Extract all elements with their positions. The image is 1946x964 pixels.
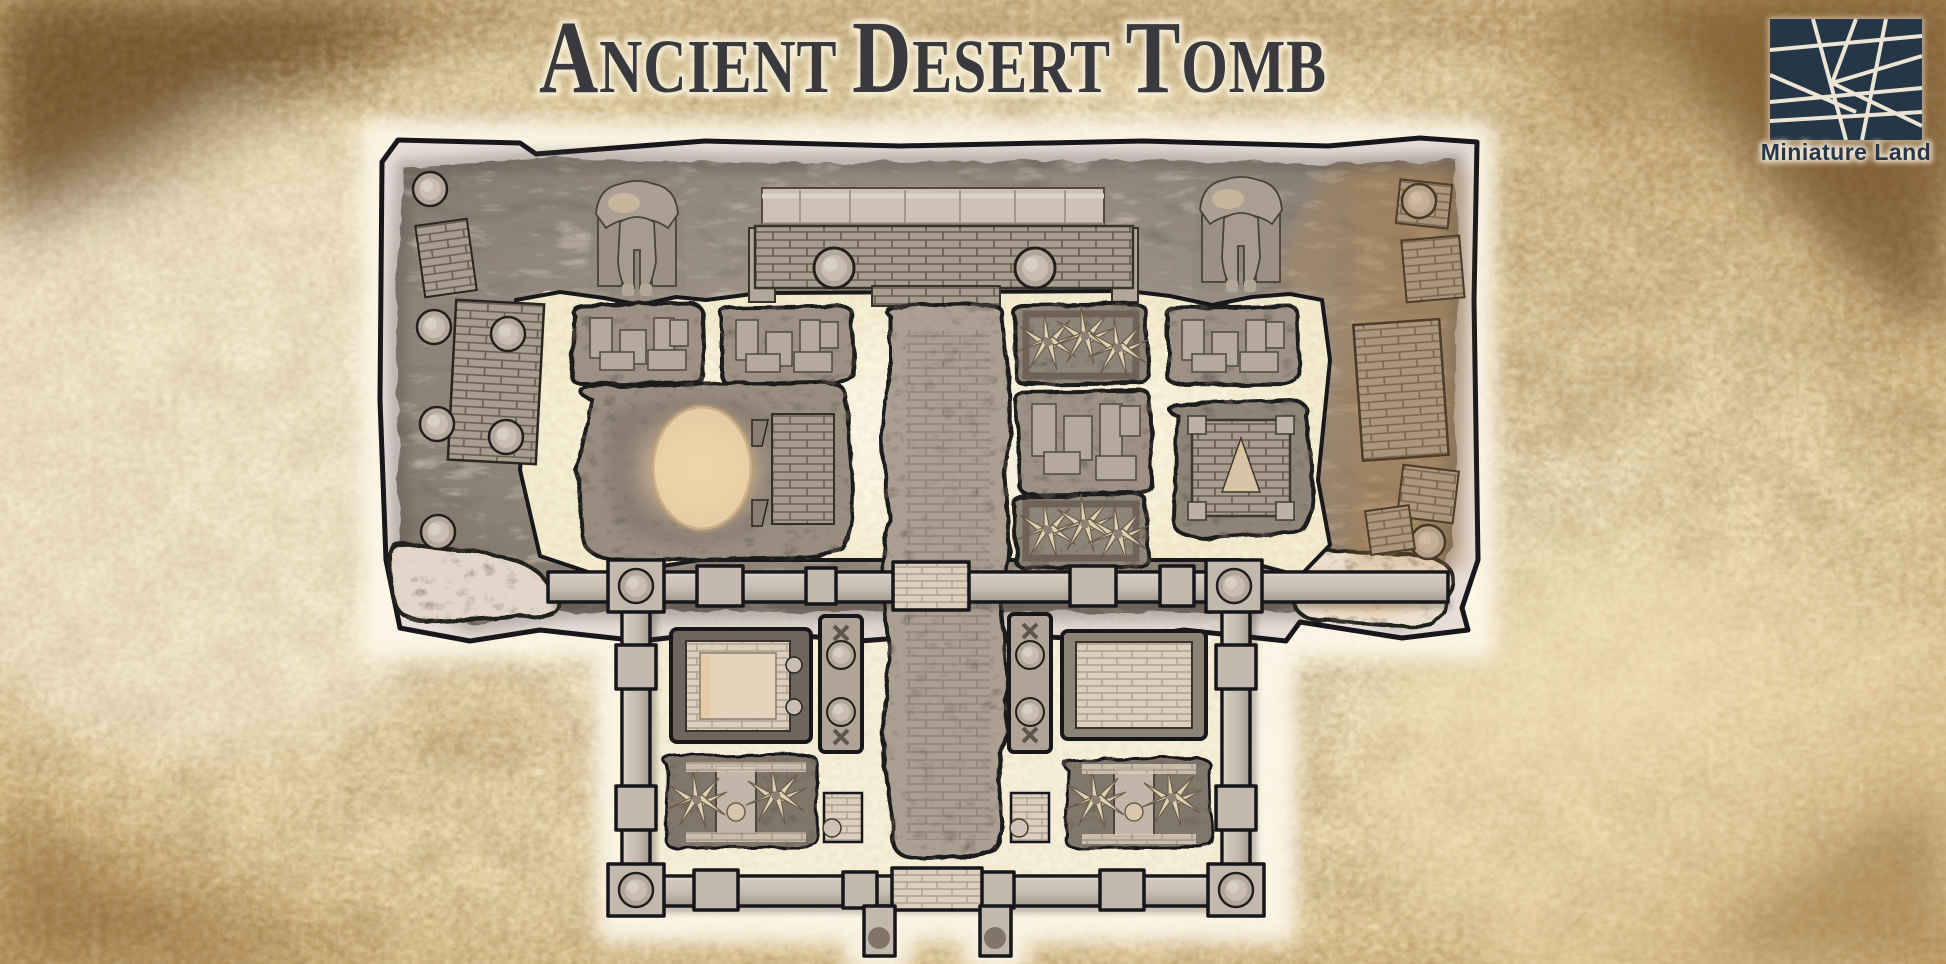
svg-text:Miniature Land: Miniature Land <box>1761 139 1932 165</box>
